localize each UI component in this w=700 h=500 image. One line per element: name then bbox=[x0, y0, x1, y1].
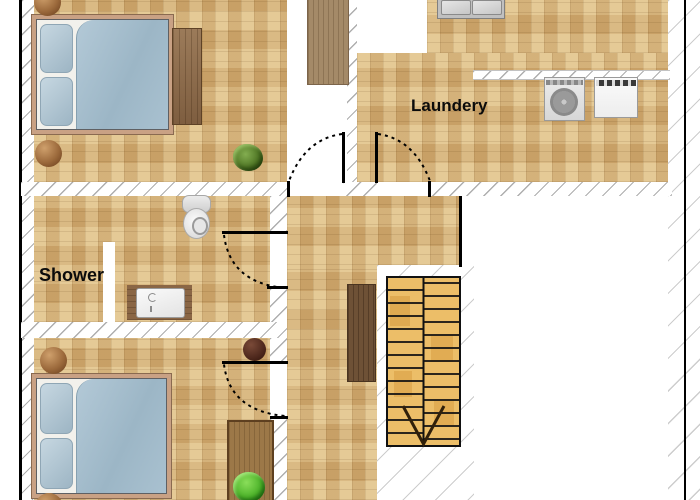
bathroom-right-wall-upper bbox=[270, 196, 287, 232]
kitchen-sink-icon bbox=[437, 0, 505, 19]
bush-icon bbox=[233, 472, 265, 500]
bathroom-room-label: Shower bbox=[39, 265, 104, 286]
wall-band-mid-left bbox=[21, 182, 288, 196]
hall-right-wall-line bbox=[459, 196, 462, 267]
bed-icon bbox=[31, 14, 174, 135]
dryer-control-panel bbox=[596, 80, 636, 86]
toilet-seat bbox=[192, 217, 208, 235]
washer-door bbox=[550, 88, 578, 116]
drain-icon bbox=[150, 306, 152, 312]
washer-control-panel bbox=[546, 80, 583, 85]
pillow-icon bbox=[40, 24, 73, 73]
stool-icon bbox=[243, 338, 266, 361]
pillow-icon bbox=[40, 383, 73, 434]
sink-basin bbox=[441, 0, 471, 15]
pillow-icon bbox=[40, 438, 73, 489]
bedroom-bottom-right-wall-upper bbox=[270, 338, 287, 362]
vanity-sink-icon bbox=[127, 285, 192, 320]
floor-plan: Laundery Shower bbox=[0, 0, 700, 500]
washing-machine-icon bbox=[544, 77, 585, 121]
nightstand-icon bbox=[35, 140, 62, 167]
wardrobe-plank-icon bbox=[307, 0, 349, 85]
wall-band-bathroom-bottom bbox=[21, 322, 287, 338]
plant-icon bbox=[233, 144, 263, 171]
hall-floor-upper bbox=[287, 196, 459, 265]
bed-icon bbox=[31, 373, 172, 499]
toilet-icon bbox=[181, 195, 211, 240]
sideboard-icon bbox=[347, 284, 376, 382]
dryer-icon bbox=[594, 77, 638, 118]
nightstand-icon bbox=[40, 347, 67, 374]
toilet-bowl bbox=[183, 208, 210, 239]
desk-icon bbox=[172, 28, 202, 125]
outer-wall-right-line bbox=[684, 0, 686, 500]
sink-basin bbox=[472, 0, 502, 15]
mattress bbox=[36, 19, 169, 130]
duvet bbox=[76, 379, 166, 493]
pillow-icon bbox=[40, 77, 73, 126]
wall-band-mid-center bbox=[343, 182, 377, 196]
door-swing-icon bbox=[289, 132, 344, 197]
wall-band-mid-right bbox=[429, 182, 672, 196]
duvet bbox=[76, 20, 168, 129]
staircase-down-icon bbox=[386, 276, 461, 447]
vanity-basin bbox=[136, 288, 185, 318]
laundry-room-label: Laundery bbox=[411, 96, 488, 116]
shower-partition-wall bbox=[103, 242, 115, 322]
mattress bbox=[36, 378, 167, 494]
bathroom-right-wall-lower bbox=[270, 289, 287, 322]
faucet-icon bbox=[148, 293, 157, 302]
